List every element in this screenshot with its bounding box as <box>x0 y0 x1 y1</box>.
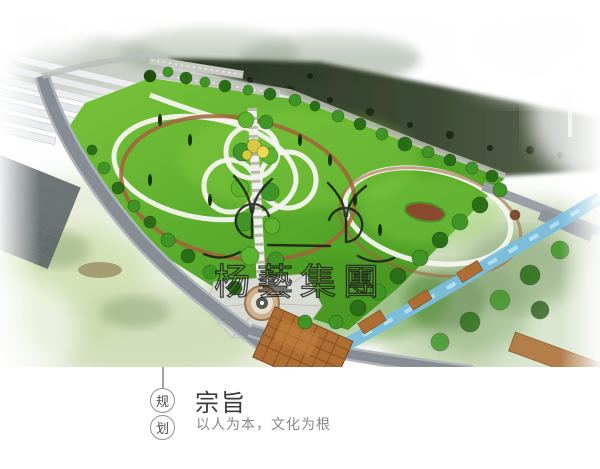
caption-title: 宗旨 <box>195 383 247 418</box>
caption-connector-line <box>162 367 164 388</box>
article-page: 杨藝集團 规 划 宗旨 以人为本，文化为根 <box>0 0 600 469</box>
planning-badge-1: 规 <box>150 388 175 413</box>
park-plan-rendering: 杨藝集團 <box>0 0 600 367</box>
planning-badge-1-label: 规 <box>156 391 169 410</box>
watermark-text: 杨藝集團 <box>214 262 386 303</box>
park-plan-image[interactable]: 杨藝集團 <box>0 0 600 367</box>
planning-badge-2-label: 划 <box>156 418 169 437</box>
planning-badge-2: 划 <box>150 415 175 440</box>
caption-subtitle: 以人为本，文化为根 <box>196 414 331 434</box>
